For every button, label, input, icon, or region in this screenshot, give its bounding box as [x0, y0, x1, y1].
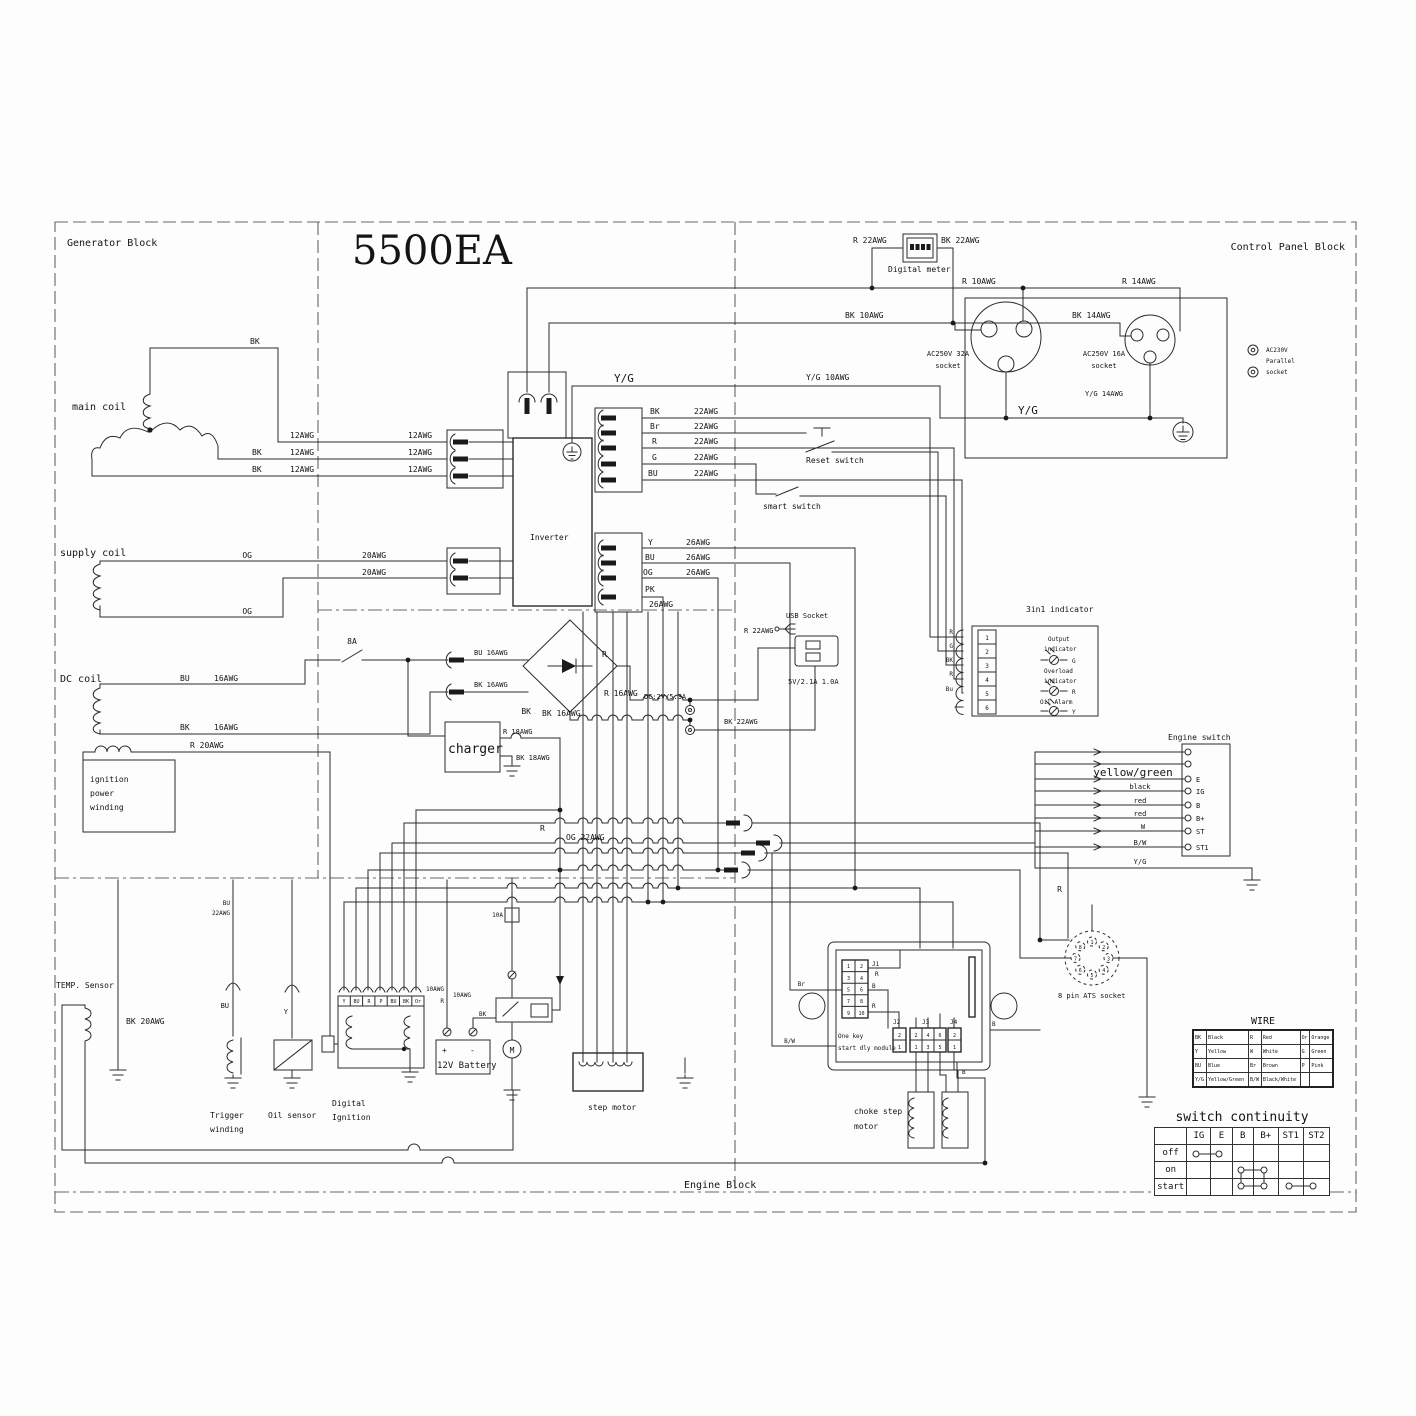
wire-label: 26AWG	[686, 538, 710, 547]
wire-label: BK 20AWG	[126, 1017, 165, 1026]
indicator-title: 3in1 indicator	[1026, 605, 1094, 614]
wire-label: R	[875, 971, 879, 978]
dc-coil-label: DC coil	[60, 674, 102, 685]
di-pin: Or	[415, 999, 421, 1005]
wire-label: B	[992, 1021, 996, 1028]
wire-label: OG	[643, 568, 653, 577]
j1-pin: 10	[858, 1011, 864, 1017]
continuity-header: E	[1211, 1128, 1232, 1145]
ignition-power-winding	[83, 746, 330, 1036]
ats-pin: 6	[1079, 968, 1082, 974]
usb-socket-label: USB Socket	[786, 612, 828, 620]
wire-label: 22AWG	[694, 453, 718, 462]
wire-label: PK	[645, 585, 655, 594]
wire-label: B/W	[1134, 839, 1147, 847]
wire-label: BK 16AWG	[542, 709, 581, 718]
module-label: One key	[838, 1033, 864, 1040]
wire-table-cell: BU	[1193, 1059, 1206, 1073]
wire-label: BU	[648, 469, 658, 478]
wire-label: R 10AWG	[962, 277, 996, 286]
usb-spec-label: 5V/2.1A 1.0A	[788, 678, 839, 686]
wire-label: Y	[648, 538, 653, 547]
block-frames	[55, 222, 1356, 1212]
wire-label: Y/G	[1018, 404, 1038, 417]
wire-label: 12AWG	[408, 431, 432, 440]
indicator-text: Y	[1072, 709, 1076, 716]
wire-label: BK	[650, 407, 660, 416]
engine-switch-label: Engine switch	[1168, 733, 1231, 742]
indicator-text: G	[1072, 658, 1076, 665]
wire-table-cell	[1300, 1073, 1310, 1088]
wire-label: Bu	[946, 686, 954, 693]
wire-label: BK	[252, 465, 262, 474]
charger	[445, 722, 564, 1010]
j1-pin: 1	[847, 964, 850, 970]
ats-pin: 5	[1090, 973, 1093, 979]
wire-table-cell: P	[1300, 1059, 1310, 1073]
ats-pin: 8	[1079, 945, 1082, 951]
wire-table-cell: Black	[1206, 1030, 1248, 1045]
ats-pin: 7	[1074, 957, 1077, 963]
page-title: 5500EA	[352, 228, 513, 274]
continuity-header: B+	[1253, 1128, 1278, 1145]
ats-pin: 4	[1102, 968, 1105, 974]
di-pin: BU	[353, 999, 359, 1005]
inverter-ac-connector	[595, 408, 642, 492]
panel-ground	[1173, 422, 1193, 442]
j1-label: J1	[872, 961, 880, 968]
wire-label: 10AWG	[426, 986, 444, 993]
wire-label: 22AWG	[694, 407, 718, 416]
wire-color-table: WIRE BK Black R Red Or Orange Y Yellow W…	[1192, 1016, 1334, 1088]
indicator-text: indicator	[1044, 678, 1077, 685]
wire-label: R 22AWG	[744, 627, 774, 635]
wire-label: Y/G	[614, 372, 634, 385]
wire-label: B/W	[784, 1038, 795, 1045]
wire-table-cell: Red	[1261, 1030, 1300, 1045]
terminal-label: ST	[1196, 828, 1205, 836]
terminal-label: B	[1196, 802, 1200, 810]
wire-label: R 20AWG	[190, 741, 224, 750]
j3-pin: 1	[914, 1045, 917, 1051]
wire-table-cell	[1310, 1073, 1333, 1088]
socket-32a-label2: socket	[935, 362, 960, 370]
j1-pin: 7	[847, 999, 850, 1005]
wire-label: G	[949, 643, 953, 650]
j4-pin: 2	[953, 1033, 956, 1039]
wire-label: BK 18AWG	[516, 754, 550, 762]
indicator-text: Output	[1048, 636, 1070, 643]
wire-table-cell: Br	[1248, 1059, 1261, 1073]
indicator-text: R	[1072, 689, 1076, 696]
wire-label: G	[652, 453, 657, 462]
wire-label: R 16AWG	[604, 689, 638, 698]
dc-jack-label: DC:2V/5.3A	[644, 693, 687, 701]
reset-switch-label: Reset switch	[806, 456, 864, 465]
battery-label: 12V Battery	[437, 1061, 497, 1071]
wire-label: 12AWG	[408, 448, 432, 457]
indicator-pin: 4	[985, 677, 989, 684]
wire-table-cell: Green	[1310, 1045, 1333, 1059]
wire-label: red	[1134, 797, 1147, 805]
ats-pin: 1	[1090, 940, 1093, 946]
continuity-header: B	[1232, 1128, 1253, 1145]
terminal-label: ST1	[1196, 844, 1209, 852]
wire-label: BK	[521, 707, 531, 716]
choke-step-motor	[908, 1092, 968, 1148]
wire-label: R	[949, 671, 953, 678]
bk20-wire	[110, 880, 126, 1080]
wire-label: 10AWG	[453, 992, 471, 999]
wire-label: BU 16AWG	[474, 649, 508, 657]
winding-label: power	[90, 789, 114, 798]
wire-label: red	[1134, 810, 1147, 818]
main-coil-label: main coil	[72, 402, 126, 413]
wire-label: R 18AWG	[503, 728, 533, 736]
di-pin: P	[379, 999, 382, 1005]
wire-label: R 14AWG	[1122, 277, 1156, 286]
indicator-pin: 5	[985, 691, 989, 698]
engine-block-label: Engine Block	[684, 1180, 756, 1191]
wire-label: R	[602, 650, 607, 659]
wire-label: BK	[180, 723, 190, 732]
wire-label: BU	[221, 1002, 229, 1010]
digital-ignition	[322, 810, 424, 1082]
wire-label: OG	[242, 607, 252, 616]
j3-pin: 4	[926, 1033, 929, 1039]
wire-label: black	[1129, 783, 1151, 791]
j1-pin: 2	[860, 964, 863, 970]
charger-label: charger	[448, 742, 503, 757]
temp-sensor-label: TEMP. Sensor	[56, 981, 114, 990]
wire-label: 22AWG	[694, 437, 718, 446]
oil-sensor-label: Oil sensor	[268, 1111, 316, 1120]
wire-label: BK 22AWG	[724, 718, 758, 726]
wire-label: Br	[798, 981, 806, 988]
wire-table-cell: W	[1248, 1045, 1261, 1059]
wire-table-cell: Pink	[1310, 1059, 1333, 1073]
socket-32a	[971, 302, 1041, 372]
trigger-label2: winding	[210, 1125, 244, 1134]
wire-label: Y	[284, 1008, 289, 1016]
wire-label: BK	[946, 657, 954, 664]
wire-label: R	[652, 437, 657, 446]
continuity-header: ST1	[1278, 1128, 1303, 1145]
winding-label: ignition	[90, 775, 129, 784]
main-coil	[92, 348, 447, 476]
j3-pin: 3	[926, 1045, 929, 1051]
j1-pin: 5	[847, 988, 850, 994]
j4-label: J4	[950, 1019, 958, 1026]
wire-label: R	[949, 629, 953, 636]
smart-switch-label: smart switch	[763, 502, 821, 511]
j1-pin: 3	[847, 976, 850, 982]
ats-pin: 2	[1102, 945, 1105, 951]
j2-label: J2	[893, 1019, 901, 1026]
indicator-text: indicator	[1044, 646, 1077, 653]
inverter-dc-connector	[595, 533, 642, 612]
socket-32a-label: AC250V 32A	[927, 350, 970, 358]
battery-minus: -	[470, 1046, 475, 1055]
di-pin: BK	[403, 999, 409, 1005]
wire-label: W	[1141, 823, 1146, 831]
main-connector	[447, 430, 513, 488]
wire-label: 26AWG	[686, 553, 710, 562]
wire-label: BK	[479, 1011, 487, 1018]
wire-label: 20AWG	[362, 551, 386, 560]
parallel-socket	[1248, 345, 1258, 377]
wire-table-cell: Or	[1300, 1030, 1310, 1045]
socket-16a-label: AC250V 16A	[1083, 350, 1126, 358]
wire-label: BK 10AWG	[845, 311, 884, 320]
terminal-label: IG	[1196, 788, 1204, 796]
di-pin: R	[367, 999, 371, 1005]
indicator-text: Oil Alarm	[1040, 699, 1073, 706]
trigger-label: Trigger	[210, 1111, 244, 1120]
digital-meter-label: Digital meter	[888, 265, 951, 274]
wire-label: BK	[252, 448, 262, 457]
parallel-label2: Parallel	[1266, 358, 1295, 365]
di-pin: BU	[390, 999, 396, 1005]
wire-label: BU	[223, 900, 231, 907]
wire-table-cell: Black/White	[1261, 1073, 1300, 1088]
indicator-pin: 1	[985, 635, 989, 642]
wire-label: Y/G	[1134, 858, 1147, 866]
starter-motor-label: M	[510, 1046, 515, 1055]
switch-continuity: switch continuity IG E B B+ ST1 ST2 off …	[1154, 1110, 1330, 1196]
j1-pin: 8	[860, 999, 863, 1005]
wire-table-cell: Blue	[1206, 1059, 1248, 1073]
wire-label: 26AWG	[686, 568, 710, 577]
one-key-module	[772, 942, 1040, 1165]
terminal-label: B+	[1196, 815, 1204, 823]
wire-table-cell: White	[1261, 1045, 1300, 1059]
oil-sensor	[274, 880, 312, 1088]
wire-label: 22AWG	[694, 469, 718, 478]
socket-16a-label2: socket	[1091, 362, 1116, 370]
indicator-3in1	[956, 626, 1098, 716]
terminal-label: E	[1196, 776, 1200, 784]
j3-label: J3	[922, 1019, 930, 1026]
wire-label: BU	[180, 674, 190, 683]
wire-label: 16AWG	[214, 674, 238, 683]
choke-label: choke step	[854, 1107, 902, 1116]
indicator-text: Overload	[1044, 668, 1073, 675]
control-panel-box	[965, 298, 1227, 458]
temp-sensor	[62, 1005, 985, 1163]
indicator-pin: 6	[985, 705, 989, 712]
battery-plus: +	[442, 1046, 447, 1055]
wire-label: BK 22AWG	[941, 236, 980, 245]
socket-16a	[1125, 315, 1175, 365]
wire-label: 12AWG	[290, 465, 314, 474]
wire-label: BK	[250, 337, 260, 346]
wire-table-cell: Orange	[1310, 1030, 1333, 1045]
continuity-header: IG	[1187, 1128, 1211, 1145]
parallel-label3: socket	[1266, 369, 1288, 376]
fuse-8a-label: 8A	[347, 637, 357, 646]
fuse-10a-label: 10A	[492, 912, 503, 919]
wire-label: B	[872, 983, 876, 990]
inverter-label: Inverter	[530, 533, 569, 542]
wire-label: B	[962, 1069, 966, 1076]
wire-table-cell: BK	[1193, 1030, 1206, 1045]
wire-label: Y/G 14AWG	[1085, 390, 1123, 398]
wire-label: R	[872, 1003, 876, 1010]
wire-label: R 22AWG	[853, 236, 887, 245]
continuity-header: ST2	[1303, 1128, 1329, 1145]
supply-coil	[93, 548, 513, 617]
digital-meter	[903, 234, 937, 262]
wire-label: BK 16AWG	[474, 681, 508, 689]
continuity-row-label: start	[1155, 1179, 1187, 1196]
continuity-row-label: on	[1155, 1162, 1187, 1179]
wire-label: Br	[650, 422, 660, 431]
j3-pin: 5	[938, 1045, 941, 1051]
wire-label: R	[440, 998, 444, 1005]
usb-socket	[775, 624, 838, 666]
dc-coil	[93, 650, 528, 736]
indicator-pin: 2	[985, 649, 989, 656]
wire-label: 12AWG	[290, 431, 314, 440]
j2-pin: 1	[898, 1045, 901, 1051]
continuity-row-label: off	[1155, 1145, 1187, 1162]
digital-ignition-label: Digital	[332, 1099, 366, 1108]
wire-label: 12AWG	[290, 448, 314, 457]
j4-pin: 1	[953, 1045, 956, 1051]
wire-table-cell: Y	[1193, 1045, 1206, 1059]
module-label2: start dly module	[838, 1045, 896, 1052]
top-wiring	[527, 248, 1183, 443]
wire-table-cell: Brown	[1261, 1059, 1300, 1073]
wire-table-cell: Yellow	[1206, 1045, 1248, 1059]
wire-label: R	[1057, 885, 1062, 894]
wire-table-cell: R	[1248, 1030, 1261, 1045]
generator-block-label: Generator Block	[67, 238, 157, 249]
j1-pin: 4	[860, 976, 863, 982]
step-motor-label: step motor	[588, 1103, 636, 1112]
j3-pin: 2	[914, 1033, 917, 1039]
wire-label: 26AWG	[649, 600, 673, 609]
j1-pin: 9	[847, 1011, 850, 1017]
di-pin: Y	[342, 999, 345, 1005]
wire-label: 22AWG	[694, 422, 718, 431]
continuity-title: switch continuity	[1154, 1110, 1330, 1125]
j3-pin: 6	[938, 1033, 941, 1039]
wire-table-cell: Yellow/Green	[1206, 1073, 1248, 1088]
ats-socket-label: 8 pin ATS socket	[1058, 992, 1125, 1000]
wire-table-cell: Y/G	[1193, 1073, 1206, 1088]
wire-label: R	[540, 824, 545, 833]
ats-socket	[1065, 905, 1155, 1107]
wire-label: 16AWG	[214, 723, 238, 732]
indicator-pin: 3	[985, 663, 989, 670]
wire-table-cell: B/W	[1248, 1073, 1261, 1088]
wire-label: Y/G 10AWG	[806, 373, 850, 382]
j1-pin: 6	[860, 988, 863, 994]
wire-label: OG	[242, 551, 252, 560]
wire-label: 20AWG	[362, 568, 386, 577]
wire-label: BU	[645, 553, 655, 562]
schematic-canvas: Generator Block Control Panel Block Engi…	[0, 0, 1416, 1416]
ats-pin: 3	[1107, 957, 1110, 963]
wire-label: OG 22AWG	[566, 833, 605, 842]
inverter-box	[508, 372, 592, 606]
parallel-label: AC230V	[1266, 347, 1288, 354]
wire-label: 22AWG	[212, 910, 230, 917]
winding-label: winding	[90, 803, 124, 812]
control-panel-block-label: Control Panel Block	[1231, 242, 1345, 253]
schematic-page: Generator Block Control Panel Block Engi…	[0, 0, 1416, 1416]
choke-label2: motor	[854, 1122, 878, 1131]
rectifier	[523, 620, 617, 712]
wire-label: yellow/green	[1093, 766, 1172, 779]
wire-table-title: WIRE	[1192, 1016, 1334, 1027]
wire-label: 12AWG	[408, 465, 432, 474]
wire-table-cell: G	[1300, 1045, 1310, 1059]
wire-label: BK 14AWG	[1072, 311, 1111, 320]
j2-pin: 2	[898, 1033, 901, 1039]
digital-ignition-label2: Ignition	[332, 1113, 371, 1122]
supply-coil-label: supply coil	[60, 548, 126, 559]
